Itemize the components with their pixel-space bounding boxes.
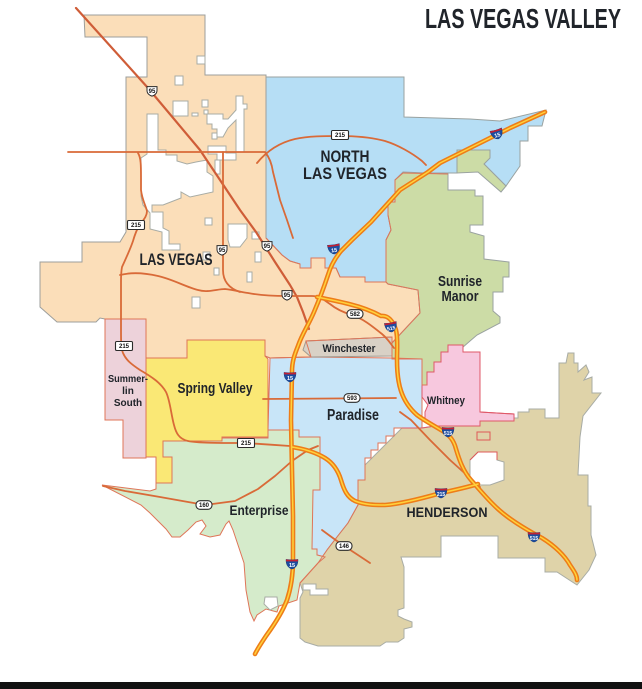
svg-text:Summer-: Summer- xyxy=(108,374,148,385)
svg-text:582: 582 xyxy=(350,312,361,318)
svg-text:15: 15 xyxy=(289,563,295,569)
svg-text:215: 215 xyxy=(241,441,252,447)
svg-text:95: 95 xyxy=(284,293,291,299)
svg-text:515: 515 xyxy=(387,325,396,332)
svg-text:215: 215 xyxy=(131,223,142,229)
svg-text:Enterprise: Enterprise xyxy=(230,502,289,518)
svg-text:Winchester: Winchester xyxy=(323,343,377,355)
svg-text:95: 95 xyxy=(264,244,271,250)
svg-text:593: 593 xyxy=(347,396,358,402)
svg-text:HENDERSON: HENDERSON xyxy=(407,504,488,520)
svg-text:515: 515 xyxy=(530,536,539,542)
svg-text:South: South xyxy=(114,398,142,409)
svg-text:LAS VEGAS: LAS VEGAS xyxy=(140,250,213,269)
svg-text:146: 146 xyxy=(339,544,350,550)
svg-text:95: 95 xyxy=(149,89,156,95)
svg-text:215: 215 xyxy=(119,344,130,350)
svg-text:215: 215 xyxy=(437,492,446,498)
svg-text:160: 160 xyxy=(199,503,210,509)
svg-text:515: 515 xyxy=(444,431,453,437)
svg-text:lin: lin xyxy=(122,386,134,397)
svg-text:Paradise: Paradise xyxy=(327,407,379,424)
svg-text:215: 215 xyxy=(335,133,346,139)
svg-text:15: 15 xyxy=(331,248,338,255)
svg-text:95: 95 xyxy=(219,248,226,254)
svg-text:Whitney: Whitney xyxy=(427,395,466,407)
svg-text:Spring Valley: Spring Valley xyxy=(178,380,254,397)
svg-text:15: 15 xyxy=(287,376,293,382)
svg-text:Manor: Manor xyxy=(442,288,479,305)
svg-text:LAS VEGAS: LAS VEGAS xyxy=(303,164,387,183)
svg-text:LAS VEGAS VALLEY: LAS VEGAS VALLEY xyxy=(425,3,621,34)
